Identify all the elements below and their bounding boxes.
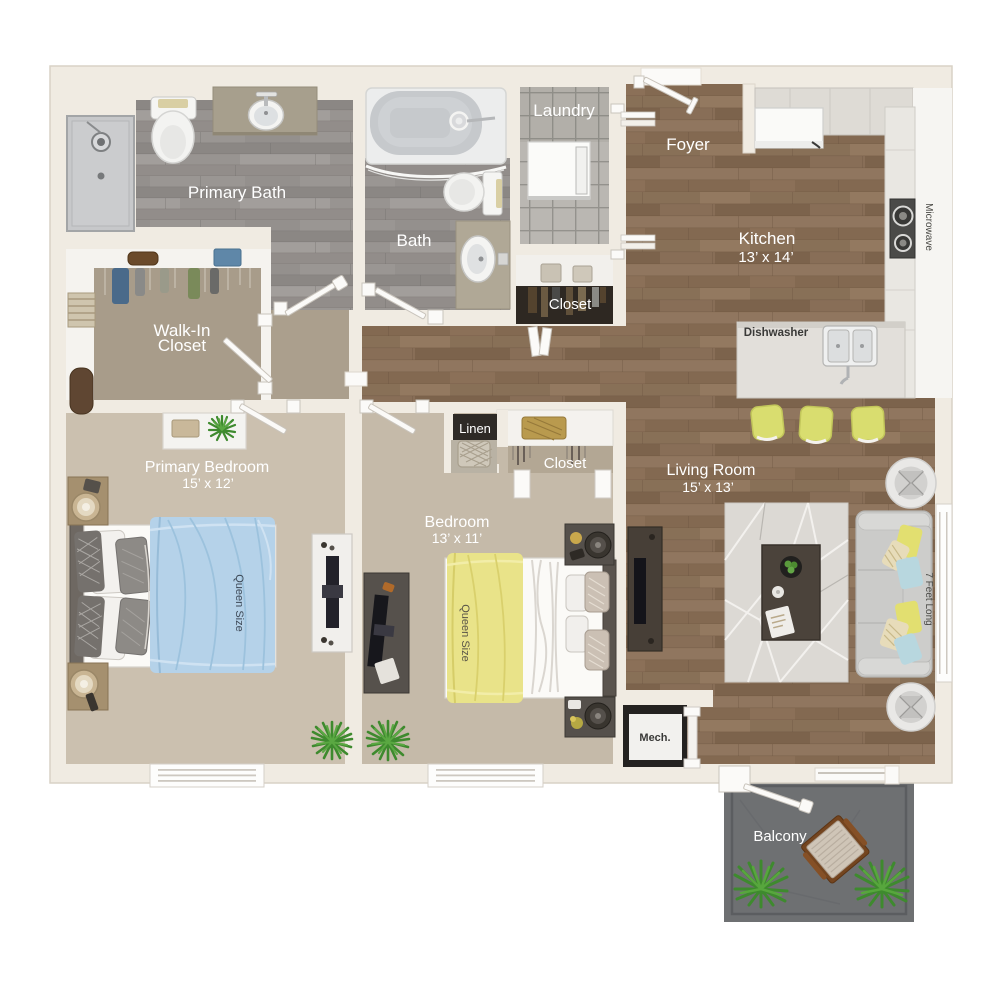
svg-text:13’ x 11’: 13’ x 11’ xyxy=(432,530,483,546)
svg-text:Closet: Closet xyxy=(549,296,592,313)
svg-text:Bath: Bath xyxy=(397,231,432,250)
svg-text:Primary Bath: Primary Bath xyxy=(188,183,286,202)
svg-text:Laundry: Laundry xyxy=(533,101,595,120)
svg-text:Foyer: Foyer xyxy=(666,135,710,154)
svg-text:Dishwasher: Dishwasher xyxy=(744,327,809,339)
svg-text:13’ x 14’: 13’ x 14’ xyxy=(738,249,793,266)
svg-text:Queen Size: Queen Size xyxy=(459,604,471,661)
svg-text:Queen Size: Queen Size xyxy=(233,574,245,631)
svg-text:7 Feet Long: 7 Feet Long xyxy=(923,572,934,625)
svg-text:Closet: Closet xyxy=(544,455,587,472)
svg-text:Closet: Closet xyxy=(158,336,206,355)
svg-text:Mech.: Mech. xyxy=(639,732,670,744)
svg-text:Primary Bedroom: Primary Bedroom xyxy=(145,459,269,476)
svg-text:Living Room: Living Room xyxy=(667,462,756,479)
svg-text:15’ x 13’: 15’ x 13’ xyxy=(682,479,734,495)
svg-text:Bedroom: Bedroom xyxy=(425,514,490,531)
svg-text:15’ x 12’: 15’ x 12’ xyxy=(182,475,234,491)
svg-text:Balcony: Balcony xyxy=(753,828,807,845)
svg-text:Kitchen: Kitchen xyxy=(739,229,796,248)
svg-text:Microwave: Microwave xyxy=(923,203,934,251)
svg-text:Linen: Linen xyxy=(459,421,491,436)
